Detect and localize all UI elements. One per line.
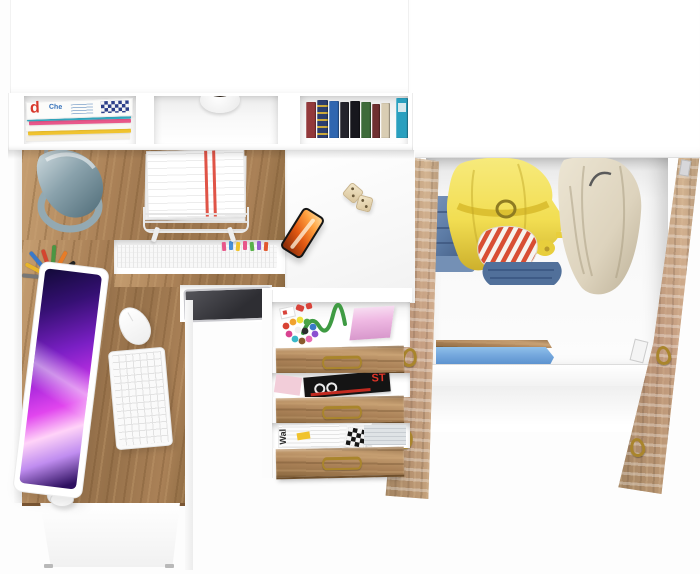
drawer-1-front [276,346,405,377]
book [381,103,390,138]
book [372,104,380,138]
book [350,101,360,138]
magazine-top-cover: d Che [26,98,134,120]
book [317,100,328,138]
magazine-checker-graphic [101,100,129,113]
desk-front-panel [28,503,180,567]
bed-top-panel-right [408,0,700,158]
flower-pot [200,96,240,113]
index-tab [236,242,241,251]
hutch-cubby-magazines: d Che [24,96,136,144]
book-label [398,103,406,112]
hutch-cubby-books [300,96,408,144]
bed-top-panel-left [10,0,408,94]
drawer-unit-top [262,288,412,303]
magazine-text-lines [71,104,93,115]
drawer-2-contents: ST [272,373,410,397]
furniture-product-photo: ST Wal d Che [0,0,700,574]
wardrobe-blue-item [436,347,554,364]
book [396,98,408,138]
drawer-3-handle [322,457,362,471]
index-tab [257,241,261,250]
drawer-3-contents: Wal [272,423,410,448]
dark-device [183,286,272,322]
wardrobe-lower-compartment [428,386,660,432]
wardrobe-shelf-wood-edge [436,340,552,348]
drawer-2-handle [322,406,362,420]
lower-shelf [180,285,272,322]
desk-hutch: d Che [8,93,413,150]
plant [207,96,233,97]
pink-paper [274,374,302,395]
magazine: ST [303,373,391,397]
magazine-letter: d [30,99,40,117]
drawer-2-front [276,396,405,427]
paper-tray [143,147,249,243]
drawer-1-handle [322,356,362,370]
drawer-unit: ST Wal [262,288,417,495]
paper-storage-shelf [114,240,284,274]
hutch-shadow [8,150,414,159]
hutch-cubby-pot [154,96,278,144]
beige-coat [558,157,641,295]
bead-bracelet [278,314,326,346]
sticky-note-pad [349,306,394,341]
folded-jeans [483,262,562,285]
magazine-word: Che [49,104,62,111]
magazine-title: ST [371,373,385,384]
gray-paper [364,425,406,445]
desk-side-panel [185,300,193,570]
book [361,102,371,138]
index-tab [222,242,227,251]
furniture-foot [44,564,53,568]
index-tab [250,242,255,251]
book [306,102,316,138]
newspaper: Wal [278,423,372,448]
newspaper-title: Wal [278,429,288,445]
book [340,102,349,138]
drawer-3-front [276,447,405,480]
index-tab [264,242,269,251]
wardrobe-clothes [414,156,666,318]
book-row [306,98,408,138]
desk-lamp [26,146,118,238]
keyboard [108,347,173,451]
furniture-foot [165,564,174,568]
drawer-1-contents [272,302,410,347]
wardrobe-shelf [428,364,666,387]
book [329,101,339,138]
yellow-sticker [297,431,311,440]
